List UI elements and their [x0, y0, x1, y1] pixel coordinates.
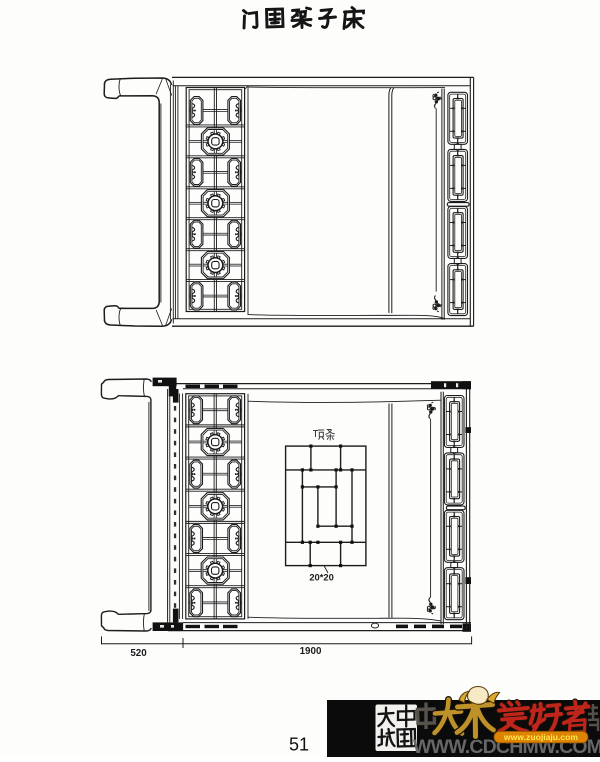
svg-text:1900: 1900	[300, 646, 322, 657]
svg-text:51: 51	[289, 735, 309, 755]
svg-text:www.zuojiaju.com: www.zuojiaju.com	[503, 732, 579, 742]
svg-text:20*20: 20*20	[309, 572, 334, 583]
svg-text:520: 520	[130, 648, 147, 659]
